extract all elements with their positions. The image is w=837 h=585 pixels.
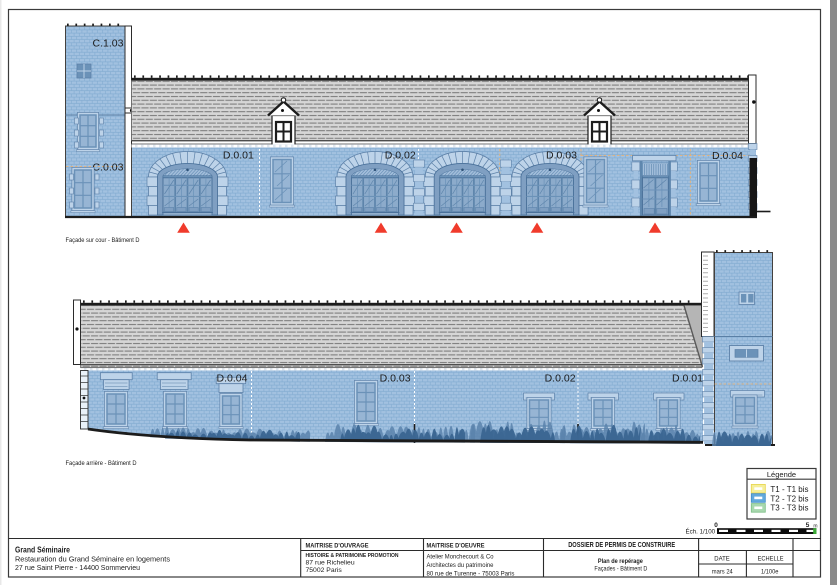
svg-text:D.0.02: D.0.02 — [545, 373, 576, 385]
svg-text:Façade arrière - Bâtiment D: Façade arrière - Bâtiment D — [66, 460, 137, 467]
svg-text:Façades - Bâtiment D: Façades - Bâtiment D — [594, 565, 647, 572]
svg-text:D.0.01: D.0.01 — [223, 149, 254, 161]
svg-text:T1 - T1 bis: T1 - T1 bis — [770, 485, 808, 494]
svg-text:MAITRISE D'OEUVRE: MAITRISE D'OEUVRE — [427, 542, 486, 549]
svg-text:D.0.04: D.0.04 — [217, 373, 248, 385]
svg-text:87 rue Richelieu: 87 rue Richelieu — [306, 560, 355, 567]
svg-text:C.1.03: C.1.03 — [93, 38, 124, 50]
svg-text:D.0.04: D.0.04 — [712, 150, 743, 162]
svg-text:80 rue de Turenne - 75003 Pari: 80 rue de Turenne - 75003 Paris — [427, 570, 516, 577]
svg-text:mars 24: mars 24 — [712, 569, 733, 576]
svg-text:ECHELLE: ECHELLE — [758, 556, 784, 563]
svg-text:T3 - T3 bis: T3 - T3 bis — [770, 504, 808, 513]
svg-text:75002 Paris: 75002 Paris — [306, 567, 343, 574]
svg-text:D.0.01: D.0.01 — [672, 373, 703, 385]
svg-text:Légende: Légende — [767, 470, 796, 479]
svg-text:27 rue Saint Pierre - 14400 So: 27 rue Saint Pierre - 14400 Sommervieu — [15, 563, 140, 572]
svg-text:Plan de repérage: Plan de repérage — [598, 558, 643, 565]
svg-text:D.0.03: D.0.03 — [380, 373, 411, 385]
svg-text:1/100e: 1/100e — [761, 569, 779, 576]
svg-text:D.0.03: D.0.03 — [546, 149, 577, 161]
svg-text:C.0.03: C.0.03 — [93, 162, 124, 174]
svg-text:Éch. 1/100: Éch. 1/100 — [686, 529, 716, 536]
svg-text:HISTOIRE & PATRIMOINE PROMOTIO: HISTOIRE & PATRIMOINE PROMOTION — [306, 553, 399, 559]
svg-text:m: m — [813, 524, 817, 530]
svg-text:MAITRISE D'OUVRAGE: MAITRISE D'OUVRAGE — [306, 542, 370, 549]
svg-text:0: 0 — [714, 522, 718, 529]
svg-text:Atelier Monchecourt & Co: Atelier Monchecourt & Co — [427, 554, 494, 561]
svg-text:5: 5 — [806, 522, 810, 529]
svg-text:DATE: DATE — [714, 556, 730, 563]
svg-text:DOSSIER DE PERMIS DE CONSTRUIR: DOSSIER DE PERMIS DE CONSTRUIRE — [568, 540, 675, 549]
svg-text:Grand Séminaire: Grand Séminaire — [15, 546, 70, 555]
svg-text:T2 - T2 bis: T2 - T2 bis — [770, 494, 808, 503]
svg-text:Façade sur cour - Bâtiment D: Façade sur cour - Bâtiment D — [66, 237, 140, 244]
svg-text:Architectes du patrimoine: Architectes du patrimoine — [427, 562, 494, 569]
svg-text:D.0.02: D.0.02 — [385, 149, 416, 161]
